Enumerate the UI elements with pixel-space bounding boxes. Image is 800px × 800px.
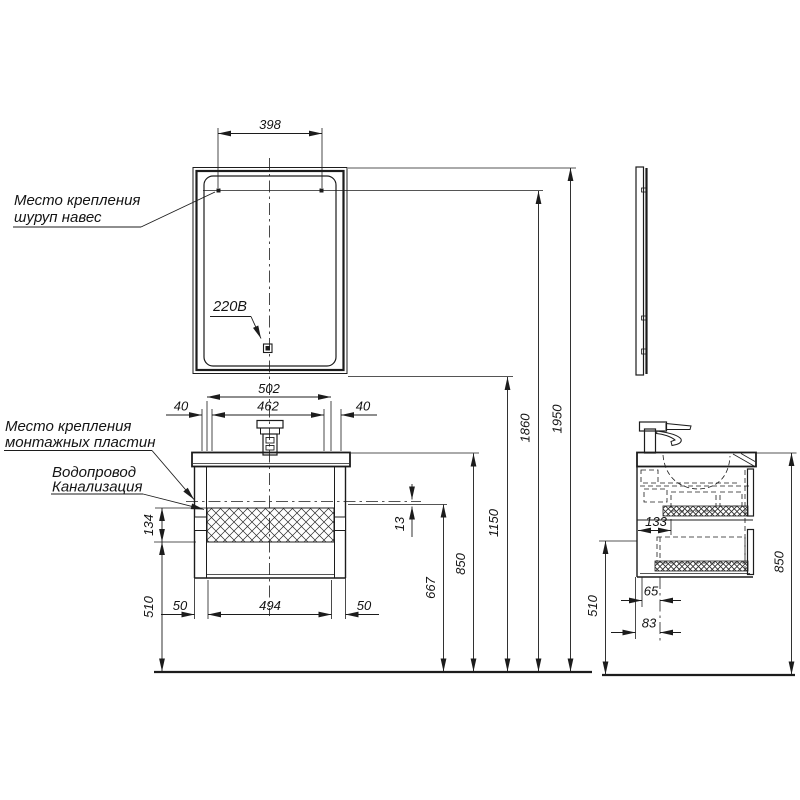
drawer-slide-top [663,506,748,516]
mirror-led-contour [204,176,336,366]
dim-text-13: 13 [392,516,407,531]
label-220v: 220В [212,299,247,315]
dim-134-510: 134 510 [141,508,206,672]
label-plumbing-2: Канализация [52,479,143,496]
siphon-hidden [644,489,667,502]
faucet-front [257,421,283,456]
dim-text-134: 134 [141,514,156,536]
dim-text-40-left: 40 [174,399,189,414]
vanity-front [186,453,447,579]
dim-text-462: 462 [257,399,279,414]
drawer-slide-bottom [655,561,748,571]
mounting-plate-left [195,517,207,531]
dim-text-398: 398 [259,117,281,132]
dim-text-83: 83 [642,616,657,631]
dim-502-462-40: 502 462 40 40 [166,381,377,451]
label-plate-mount-1: Место крепления [5,418,131,435]
mounting-plate-right [335,517,346,531]
pipe-positions: 65 83 [611,577,681,641]
dim-398: 398 [218,117,322,188]
mirror-side [636,167,647,375]
hatched-service-panel [207,508,334,542]
dim-text-40-right: 40 [356,399,371,414]
dim-13: 13 [392,484,412,537]
dim-text-1860: 1860 [518,413,533,443]
technical-drawing-canvas: 398 220В Место крепления шуруп навес 502 [0,0,800,800]
dim-text-494: 494 [259,598,281,613]
height-dims: 667 850 1150 1860 1950 [348,168,576,672]
mirror-mount-annotation: Место крепления шуруп навес [13,192,215,227]
label-plate-mount-2: монтажных пластин [5,434,155,451]
label-mirror-mount-2: шуруп навес [14,209,102,226]
dim-text-50-right: 50 [357,598,372,613]
dim-text-850-front: 850 [453,552,468,574]
drawer-front-bottom [748,530,754,575]
dim-text-1150: 1150 [486,508,501,537]
countertop-side [637,453,756,467]
dim-text-1950: 1950 [550,404,565,434]
dim-494-50: 494 50 50 [161,578,379,619]
dim-text-510-front: 510 [141,595,156,617]
installation-drawing: 398 220В Место крепления шуруп навес 502 [0,0,800,800]
label-mirror-mount-1: Место крепления [14,192,140,209]
basin-hidden-contour [663,455,730,489]
plumbing-annotation: Водопровод Канализация [51,464,204,510]
mirror-front [193,158,543,616]
drawer-hidden-bottom [657,537,745,563]
dim-text-667: 667 [423,576,438,598]
mount-point-left [217,189,221,193]
dim-text-50-left: 50 [173,598,188,613]
front-view: 398 220В Место крепления шуруп навес 502 [4,117,592,672]
dim-text-133: 133 [645,514,667,529]
faucet-side [640,422,692,453]
side-view: 133 65 83 510 850 [585,167,797,675]
power-label: 220В [210,299,261,339]
drawer-front-top [748,469,754,516]
dim-text-65: 65 [644,584,659,599]
mount-point-right [320,189,324,193]
dim-text-510-side: 510 [585,594,600,616]
dim-text-502: 502 [258,381,280,396]
dim-133: 133 [638,514,671,535]
dim-text-850-side: 850 [772,550,787,572]
